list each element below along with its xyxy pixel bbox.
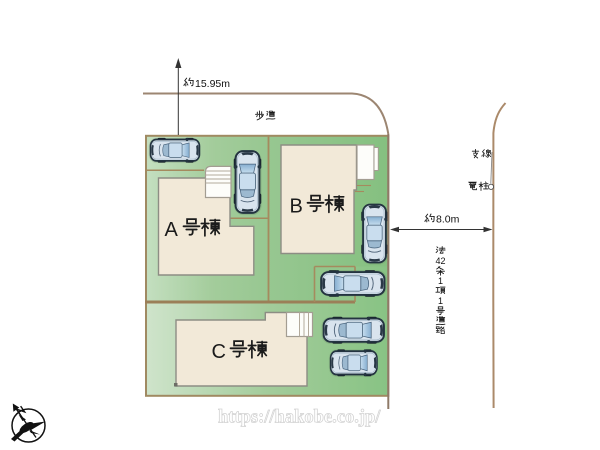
svg-text:15.95m: 15.95m [195,78,230,90]
svg-text:A: A [165,219,179,241]
svg-text:42: 42 [435,256,445,266]
svg-text:1: 1 [438,276,443,286]
svg-text:1: 1 [438,296,443,306]
svg-text:C: C [212,341,226,363]
svg-text:https://hakobe.co.jp/: https://hakobe.co.jp/ [218,408,381,428]
svg-text:B: B [290,196,303,218]
svg-text:8.0m: 8.0m [436,214,460,226]
